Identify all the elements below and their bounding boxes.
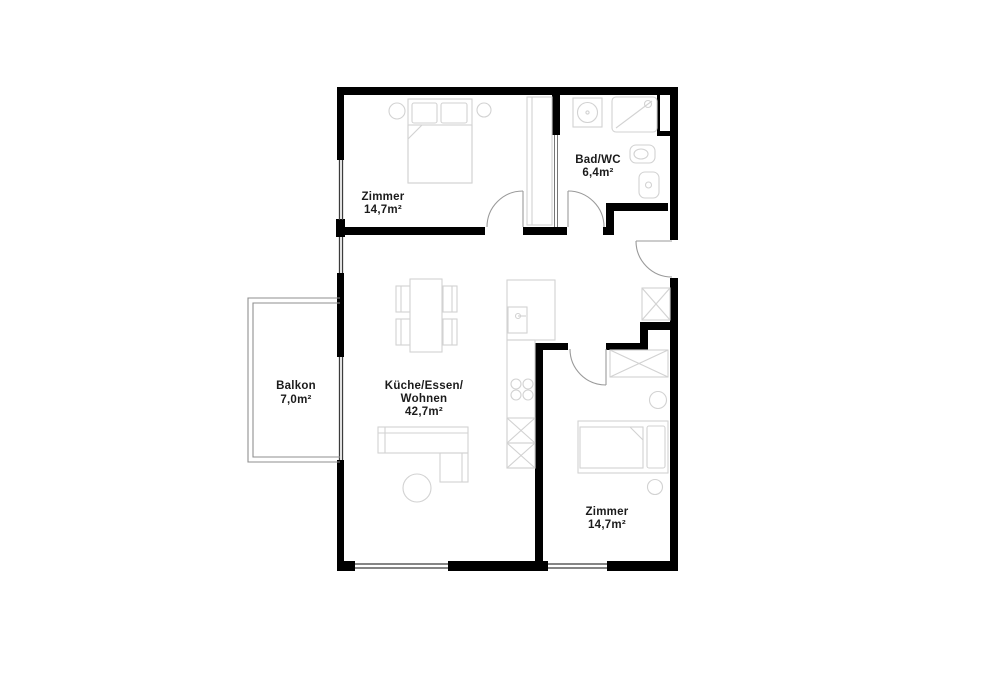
chair-icon <box>443 286 457 312</box>
wall-left-junction <box>336 219 345 237</box>
wall-shaft-horiz <box>657 131 670 136</box>
furniture-hall <box>642 288 670 320</box>
dining-table-icon <box>410 279 442 352</box>
window-bottom-left-icon <box>355 564 448 568</box>
room-label-bad: Bad/WC <box>575 154 621 166</box>
room-area-wohnen: 42,7m² <box>405 406 443 418</box>
wall-right-upper <box>670 87 678 240</box>
wall-niche-horiz <box>606 203 668 211</box>
shaft-cabinet-icon <box>642 288 670 320</box>
window-left-upper-icon <box>340 160 343 220</box>
kitchen-sink-icon <box>508 307 527 333</box>
chair-icon <box>396 286 410 312</box>
furniture-zimmer-bottom <box>578 350 668 495</box>
room-label-wohnen-line1: Küche/Essen/ <box>385 380 464 392</box>
door-swing-bad-icon <box>568 191 604 227</box>
balcony-door-window-icon <box>340 357 343 460</box>
furniture-zimmer-top <box>389 97 552 225</box>
wardrobe-icon <box>527 97 552 225</box>
cabinet-cross-icon <box>507 443 535 468</box>
cabinet-cross-icon <box>507 418 535 443</box>
door-swing-zimmer-bottom-icon <box>570 349 606 385</box>
nightstand-icon <box>389 103 405 119</box>
room-area-balkon: 7,0m² <box>280 394 311 406</box>
cooktop-icon <box>511 379 533 400</box>
stool-icon <box>648 480 663 495</box>
kitchen-island-icon <box>507 340 535 468</box>
wall-main-a <box>344 227 485 235</box>
door-swing-entry-icon <box>636 241 672 277</box>
kitchen-counter-icon <box>507 280 555 340</box>
chair-icon <box>443 319 457 345</box>
floor-plan-canvas: Zimmer 14,7m² Bad/WC 6,4m² Balkon 7,0m² … <box>0 0 1000 699</box>
room-label-zimmer-bottom: Zimmer <box>585 506 628 518</box>
room-label-balkon: Balkon <box>276 380 316 392</box>
furniture-bad <box>573 97 659 198</box>
wall-bottom-right <box>607 561 678 571</box>
room-label-wohnen-line2: Wohnen <box>401 393 448 405</box>
single-bed-icon <box>578 421 668 473</box>
wall-left-3 <box>337 460 344 571</box>
toilet-icon <box>630 145 655 163</box>
wall-bottom-mid <box>448 561 548 571</box>
window-left-mid-icon <box>340 237 343 273</box>
wall-left-2 <box>337 273 344 357</box>
door-swing-zimmer-top-icon <box>487 191 523 227</box>
nightstand-icon <box>477 103 491 117</box>
wall-left-1 <box>337 87 344 160</box>
interior-walls <box>344 94 678 561</box>
room-area-zimmer-bottom: 14,7m² <box>588 519 626 531</box>
bathroom-sink-icon <box>639 172 659 198</box>
thin-partition-zimmer-bad <box>555 135 558 227</box>
sofa-icon <box>378 427 468 482</box>
room-area-zimmer-top: 14,7m² <box>364 204 402 216</box>
window-bottom-right-icon <box>548 564 607 568</box>
wall-main-b <box>523 227 567 235</box>
wall-right-lower <box>670 278 678 571</box>
room-area-bad: 6,4m² <box>582 167 613 179</box>
wall-zimmer2-top-b <box>606 343 648 350</box>
washing-machine-icon <box>573 98 602 127</box>
chair-icon <box>396 319 410 345</box>
room-label-zimmer-top: Zimmer <box>361 191 404 203</box>
double-bed-icon <box>408 99 472 183</box>
wall-top <box>337 87 678 95</box>
furniture-kitchen <box>507 280 555 468</box>
floor-plan-drawing: Zimmer 14,7m² Bad/WC 6,4m² Balkon 7,0m² … <box>0 0 1000 699</box>
stool-icon <box>650 392 667 409</box>
wall-zimmer-bad <box>552 95 560 135</box>
shower-icon <box>612 97 657 132</box>
wall-zimmer2-left <box>535 343 543 561</box>
coffee-table-icon <box>403 474 431 502</box>
wardrobe-cross-icon <box>610 350 668 377</box>
